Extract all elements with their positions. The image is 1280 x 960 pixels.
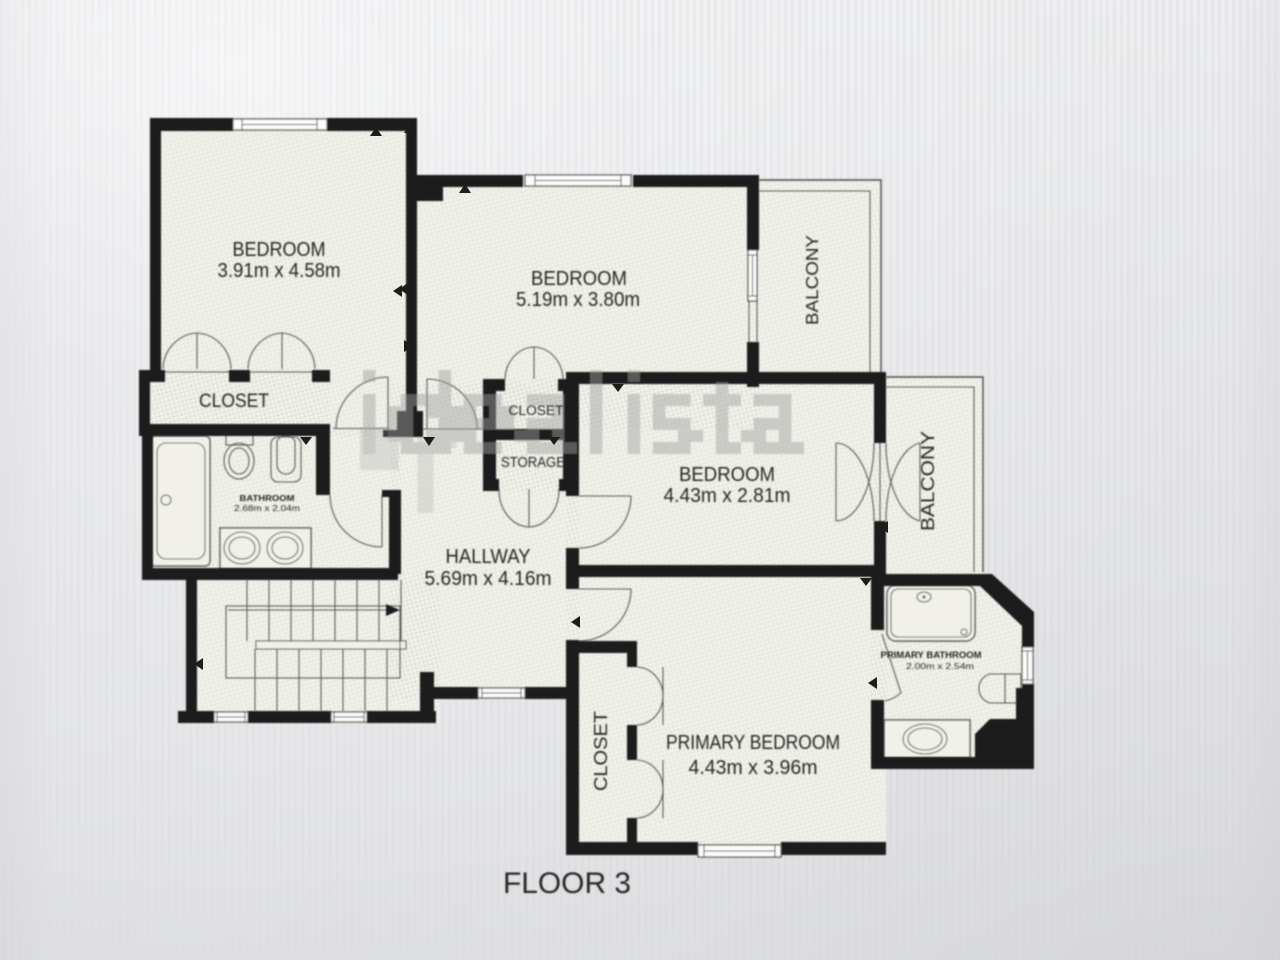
svg-text:BATHROOM: BATHROOM — [240, 493, 295, 503]
svg-text:HALLWAY: HALLWAY — [446, 546, 531, 568]
svg-text:BEDROOM: BEDROOM — [679, 464, 775, 486]
svg-text:4.43m x 3.96m: 4.43m x 3.96m — [689, 757, 818, 779]
svg-text:4.43m x 2.81m: 4.43m x 2.81m — [664, 485, 791, 507]
svg-text:BEDROOM: BEDROOM — [233, 239, 326, 261]
svg-text:CLOSET: CLOSET — [199, 391, 269, 412]
svg-text:2.68m x 2.04m: 2.68m x 2.04m — [234, 503, 300, 513]
svg-text:BALCONY: BALCONY — [918, 431, 938, 531]
svg-text:PRIMARY BEDROOM: PRIMARY BEDROOM — [666, 732, 840, 754]
svg-text:FLOOR 3: FLOOR 3 — [503, 867, 631, 900]
svg-text:STORAGE: STORAGE — [501, 455, 565, 471]
svg-text:BEDROOM: BEDROOM — [531, 268, 627, 290]
svg-text:BALCONY: BALCONY — [802, 235, 822, 325]
svg-text:CLOSET: CLOSET — [590, 711, 611, 791]
svg-text:2.00m x 2.54m: 2.00m x 2.54m — [906, 661, 974, 671]
svg-text:CLOSET: CLOSET — [509, 403, 564, 418]
svg-text:3.91m x 4.58m: 3.91m x 4.58m — [218, 260, 341, 282]
svg-text:5.19m x 3.80m: 5.19m x 3.80m — [516, 289, 640, 311]
svg-text:PRIMARY BATHROOM: PRIMARY BATHROOM — [881, 650, 982, 660]
svg-text:5.69m x 4.16m: 5.69m x 4.16m — [425, 568, 552, 590]
